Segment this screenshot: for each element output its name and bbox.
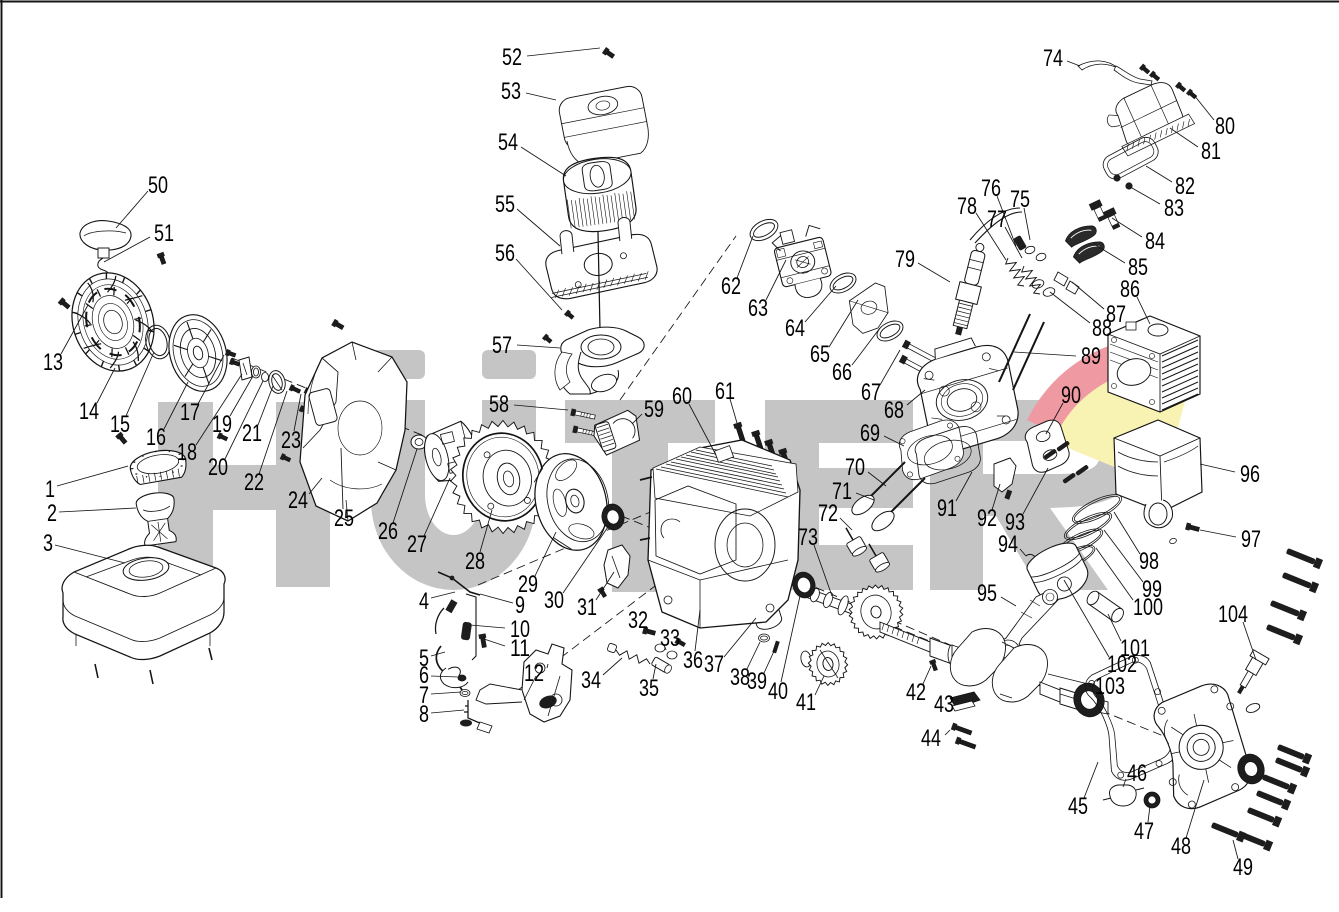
- svg-text:80: 80: [1215, 113, 1235, 140]
- svg-text:66: 66: [832, 359, 852, 386]
- svg-text:44: 44: [921, 725, 941, 752]
- svg-text:27: 27: [407, 531, 427, 558]
- svg-text:81: 81: [1201, 138, 1221, 165]
- svg-text:96: 96: [1240, 461, 1260, 488]
- svg-text:98: 98: [1139, 548, 1159, 575]
- svg-text:69: 69: [860, 420, 880, 447]
- svg-text:54: 54: [498, 129, 518, 156]
- svg-text:36: 36: [683, 647, 703, 674]
- svg-text:30: 30: [544, 587, 564, 614]
- svg-text:51: 51: [154, 220, 174, 247]
- svg-text:20: 20: [208, 454, 228, 481]
- svg-text:90: 90: [1061, 382, 1081, 409]
- svg-text:95: 95: [977, 580, 997, 607]
- svg-text:37: 37: [704, 651, 724, 678]
- svg-text:70: 70: [845, 454, 865, 481]
- svg-text:88: 88: [1092, 315, 1112, 342]
- svg-text:75: 75: [1010, 186, 1030, 213]
- svg-text:53: 53: [501, 78, 521, 105]
- svg-text:29: 29: [518, 571, 538, 598]
- svg-text:72: 72: [818, 500, 838, 527]
- svg-text:25: 25: [334, 505, 354, 532]
- svg-text:84: 84: [1145, 228, 1165, 255]
- svg-text:13: 13: [43, 349, 63, 376]
- svg-text:100: 100: [1133, 594, 1163, 621]
- svg-text:18: 18: [177, 439, 197, 466]
- svg-text:61: 61: [715, 378, 735, 405]
- svg-text:23: 23: [281, 427, 301, 454]
- svg-text:50: 50: [148, 172, 168, 199]
- svg-text:17: 17: [180, 399, 200, 426]
- svg-text:73: 73: [798, 524, 818, 551]
- svg-text:15: 15: [110, 411, 130, 438]
- svg-text:83: 83: [1164, 195, 1184, 222]
- svg-text:86: 86: [1120, 276, 1140, 303]
- svg-text:14: 14: [79, 398, 99, 425]
- svg-text:89: 89: [1081, 343, 1101, 370]
- svg-text:40: 40: [768, 678, 788, 705]
- svg-text:58: 58: [489, 391, 509, 418]
- svg-text:49: 49: [1233, 854, 1253, 881]
- svg-text:21: 21: [242, 420, 262, 447]
- svg-text:33: 33: [660, 625, 680, 652]
- svg-text:57: 57: [492, 332, 512, 359]
- svg-text:2: 2: [47, 500, 57, 527]
- svg-text:22: 22: [244, 469, 264, 496]
- svg-text:68: 68: [884, 397, 904, 424]
- svg-text:46: 46: [1127, 760, 1147, 787]
- svg-text:77: 77: [987, 206, 1007, 233]
- svg-text:60: 60: [672, 383, 692, 410]
- svg-text:76: 76: [981, 175, 1001, 202]
- svg-text:45: 45: [1068, 793, 1088, 820]
- svg-text:97: 97: [1241, 526, 1261, 553]
- svg-text:8: 8: [419, 701, 429, 728]
- svg-text:3: 3: [43, 530, 53, 557]
- svg-text:41: 41: [796, 689, 816, 716]
- svg-text:39: 39: [747, 668, 767, 695]
- svg-text:65: 65: [810, 341, 830, 368]
- svg-text:43: 43: [934, 691, 954, 718]
- svg-text:62: 62: [721, 273, 741, 300]
- svg-text:74: 74: [1043, 45, 1063, 72]
- svg-text:56: 56: [495, 240, 515, 267]
- svg-text:28: 28: [465, 548, 485, 575]
- svg-text:32: 32: [628, 607, 648, 634]
- svg-text:26: 26: [378, 518, 398, 545]
- svg-text:91: 91: [937, 495, 957, 522]
- svg-text:31: 31: [577, 594, 597, 621]
- svg-text:64: 64: [785, 315, 805, 342]
- svg-text:42: 42: [906, 679, 926, 706]
- svg-text:19: 19: [212, 411, 232, 438]
- svg-text:78: 78: [957, 193, 977, 220]
- svg-text:24: 24: [288, 487, 308, 514]
- svg-text:1: 1: [45, 476, 55, 503]
- svg-text:48: 48: [1171, 833, 1191, 860]
- svg-text:16: 16: [146, 424, 166, 451]
- svg-text:59: 59: [644, 396, 664, 423]
- svg-text:52: 52: [502, 44, 522, 71]
- svg-text:55: 55: [495, 191, 515, 218]
- svg-text:11: 11: [510, 635, 530, 662]
- svg-text:92: 92: [977, 505, 997, 532]
- svg-text:4: 4: [419, 588, 429, 615]
- svg-text:63: 63: [748, 295, 768, 322]
- svg-text:12: 12: [524, 660, 544, 687]
- svg-text:34: 34: [581, 667, 601, 694]
- svg-text:104: 104: [1218, 601, 1248, 628]
- svg-text:47: 47: [1134, 818, 1154, 845]
- svg-text:103: 103: [1095, 673, 1125, 700]
- svg-text:94: 94: [998, 531, 1018, 558]
- svg-text:67: 67: [861, 379, 881, 406]
- svg-text:35: 35: [639, 675, 659, 702]
- svg-text:79: 79: [895, 246, 915, 273]
